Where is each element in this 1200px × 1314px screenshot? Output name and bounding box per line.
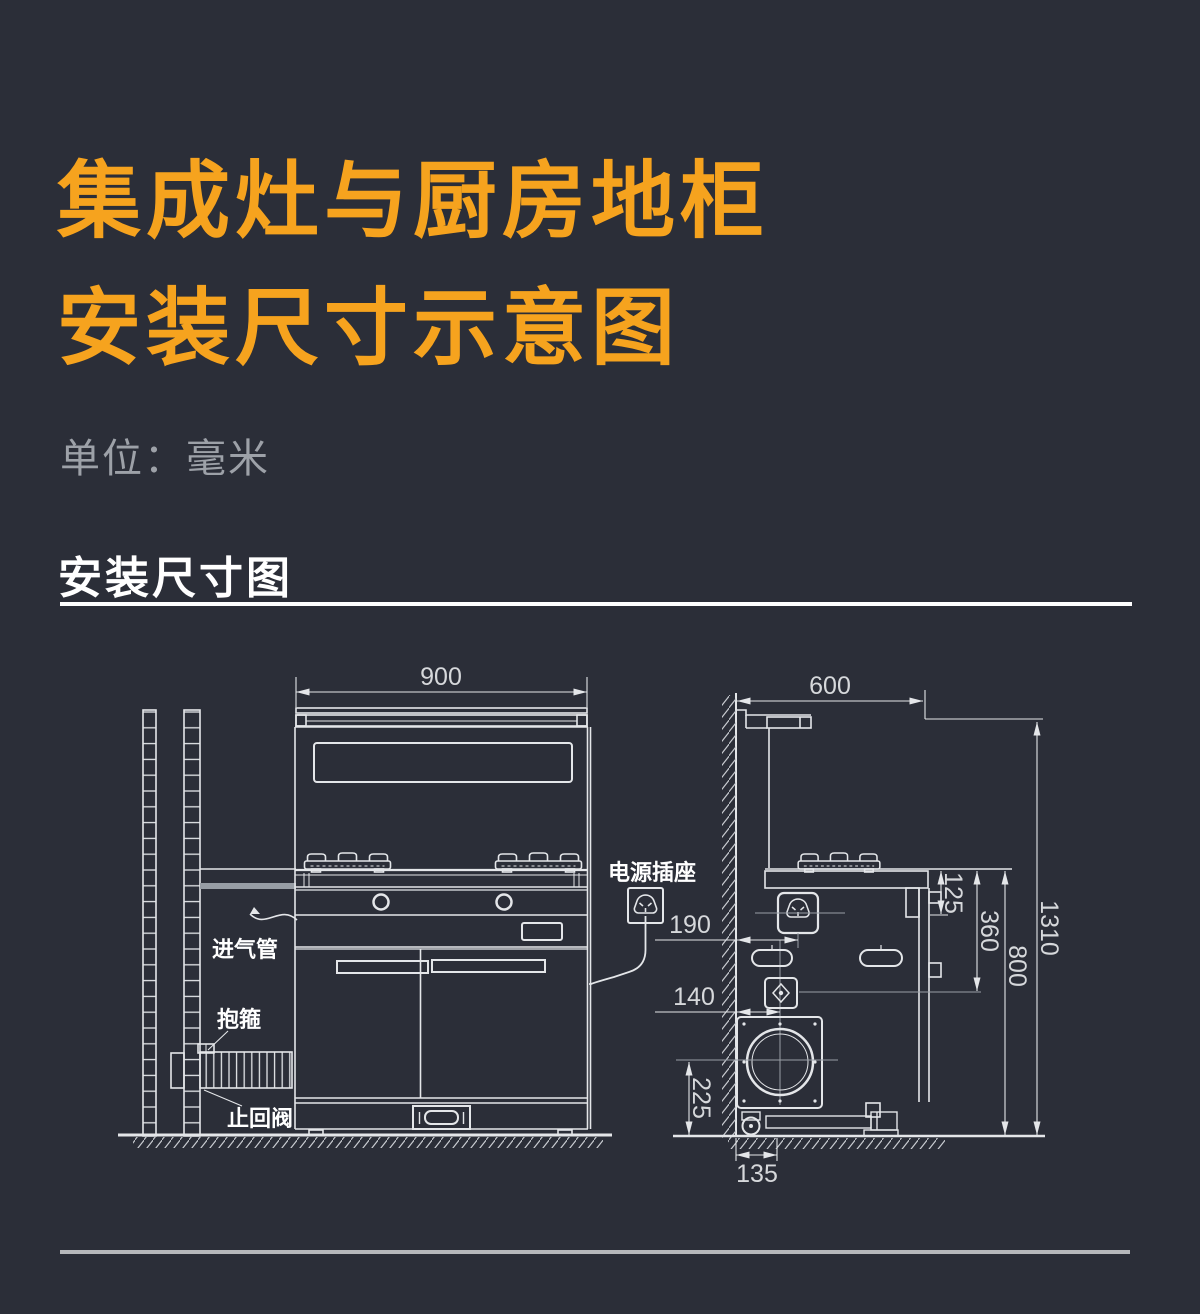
dim-135: 135 — [736, 1160, 778, 1188]
label-power-socket: 电源插座 — [608, 860, 696, 885]
dim-125: 125 — [939, 872, 967, 914]
label-clamp: 抱箍 — [217, 1007, 261, 1032]
unit-note: 单位：毫米 — [60, 426, 270, 484]
ground-hatch-right — [728, 1138, 945, 1149]
front-view-drawing — [118, 677, 663, 1148]
vent-right — [860, 950, 902, 966]
wall-hatch — [722, 695, 736, 1138]
page-title-line2: 安装尺寸示意图 — [57, 286, 680, 370]
label-check-valve: 止回阀 — [227, 1106, 293, 1131]
left-door-handle — [337, 961, 428, 973]
chassis-base — [766, 1112, 898, 1136]
page-title-line1: 集成灶与厨房地柜 — [57, 159, 769, 243]
power-socket-front — [589, 888, 663, 984]
dim-140: 140 — [673, 983, 715, 1011]
left-knob — [374, 895, 389, 910]
section-heading: 安装尺寸图 — [58, 542, 293, 606]
gas-hose-arrow — [250, 907, 260, 914]
ground-hatch-left — [133, 1137, 603, 1148]
drawer — [413, 1106, 470, 1129]
power-cord — [589, 916, 646, 984]
heading-underline — [60, 602, 1132, 606]
display-window — [522, 923, 562, 940]
gas-inlet — [765, 978, 797, 1008]
installation-diagram: 900 600 190 140 125 360 800 1310 225 135… — [0, 650, 1200, 1210]
right-door-handle — [432, 960, 545, 972]
adjacent-counter-slab — [200, 883, 296, 889]
label-gas-pipe: 进气管 — [212, 937, 278, 962]
dim-360: 360 — [975, 910, 1003, 952]
bottom-divider — [60, 1250, 1130, 1254]
dim-1310: 1310 — [1035, 900, 1063, 956]
exhaust-duct — [200, 1052, 292, 1088]
check-valve-plate — [171, 1053, 184, 1088]
right-knob — [497, 895, 512, 910]
dim-800: 800 — [1003, 945, 1031, 987]
dim-600: 600 — [809, 672, 851, 700]
vent-left — [752, 950, 792, 966]
dim-190: 190 — [669, 911, 711, 939]
dim-900: 900 — [420, 663, 462, 691]
hood-screen-panel — [314, 743, 572, 782]
caster-wheel — [742, 1112, 760, 1135]
gas-hose-curve — [250, 914, 297, 920]
dim-225: 225 — [687, 1077, 715, 1119]
